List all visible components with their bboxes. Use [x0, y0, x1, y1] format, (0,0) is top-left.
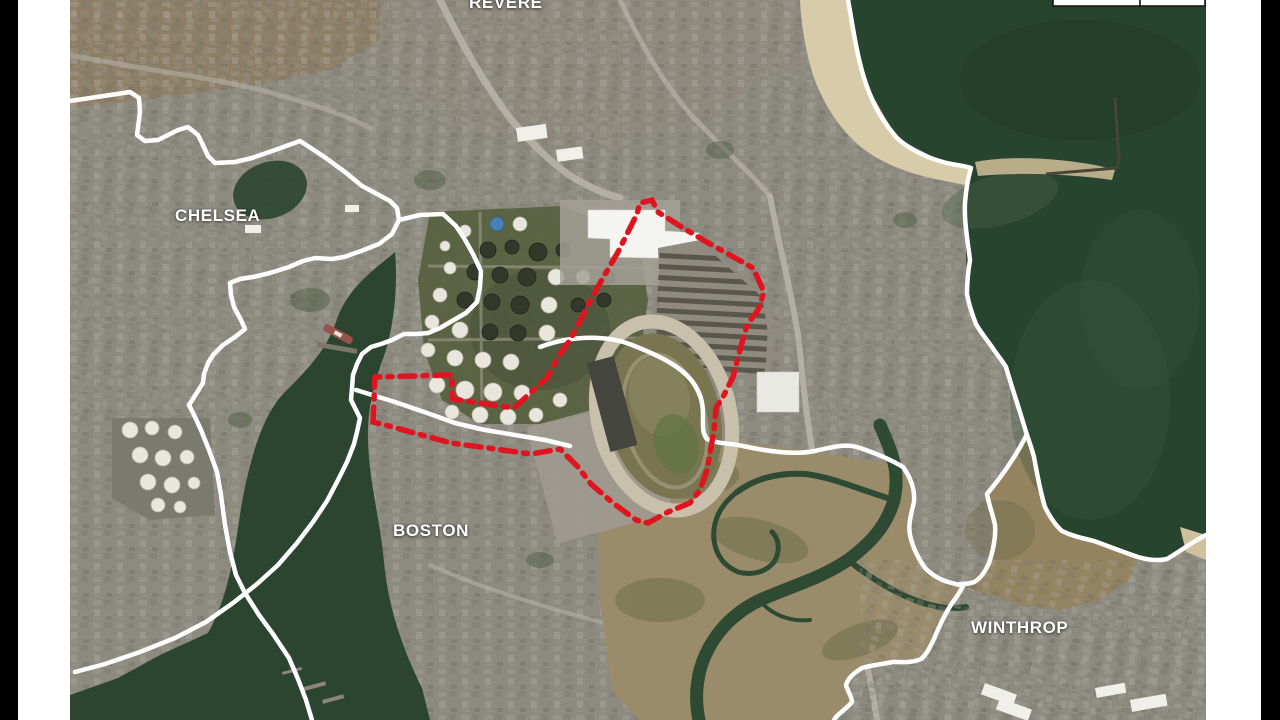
aerial-map: [0, 0, 1280, 720]
label-boston: BOSTON: [393, 521, 469, 541]
letterbox-right: [1261, 0, 1280, 720]
label-chelsea: CHELSEA: [175, 206, 260, 226]
page-margin-left: [18, 0, 70, 720]
white-building: [757, 372, 799, 412]
scale-bar: [1053, 0, 1205, 6]
label-revere: REVERE: [469, 0, 543, 13]
map-frame: REVERE CHELSEA BOSTON WINTHROP: [0, 0, 1280, 720]
page-margin-right: [1206, 0, 1261, 720]
aerial-imagery: [70, 0, 1206, 720]
letterbox-left: [0, 0, 18, 720]
label-winthrop: WINTHROP: [971, 618, 1068, 638]
